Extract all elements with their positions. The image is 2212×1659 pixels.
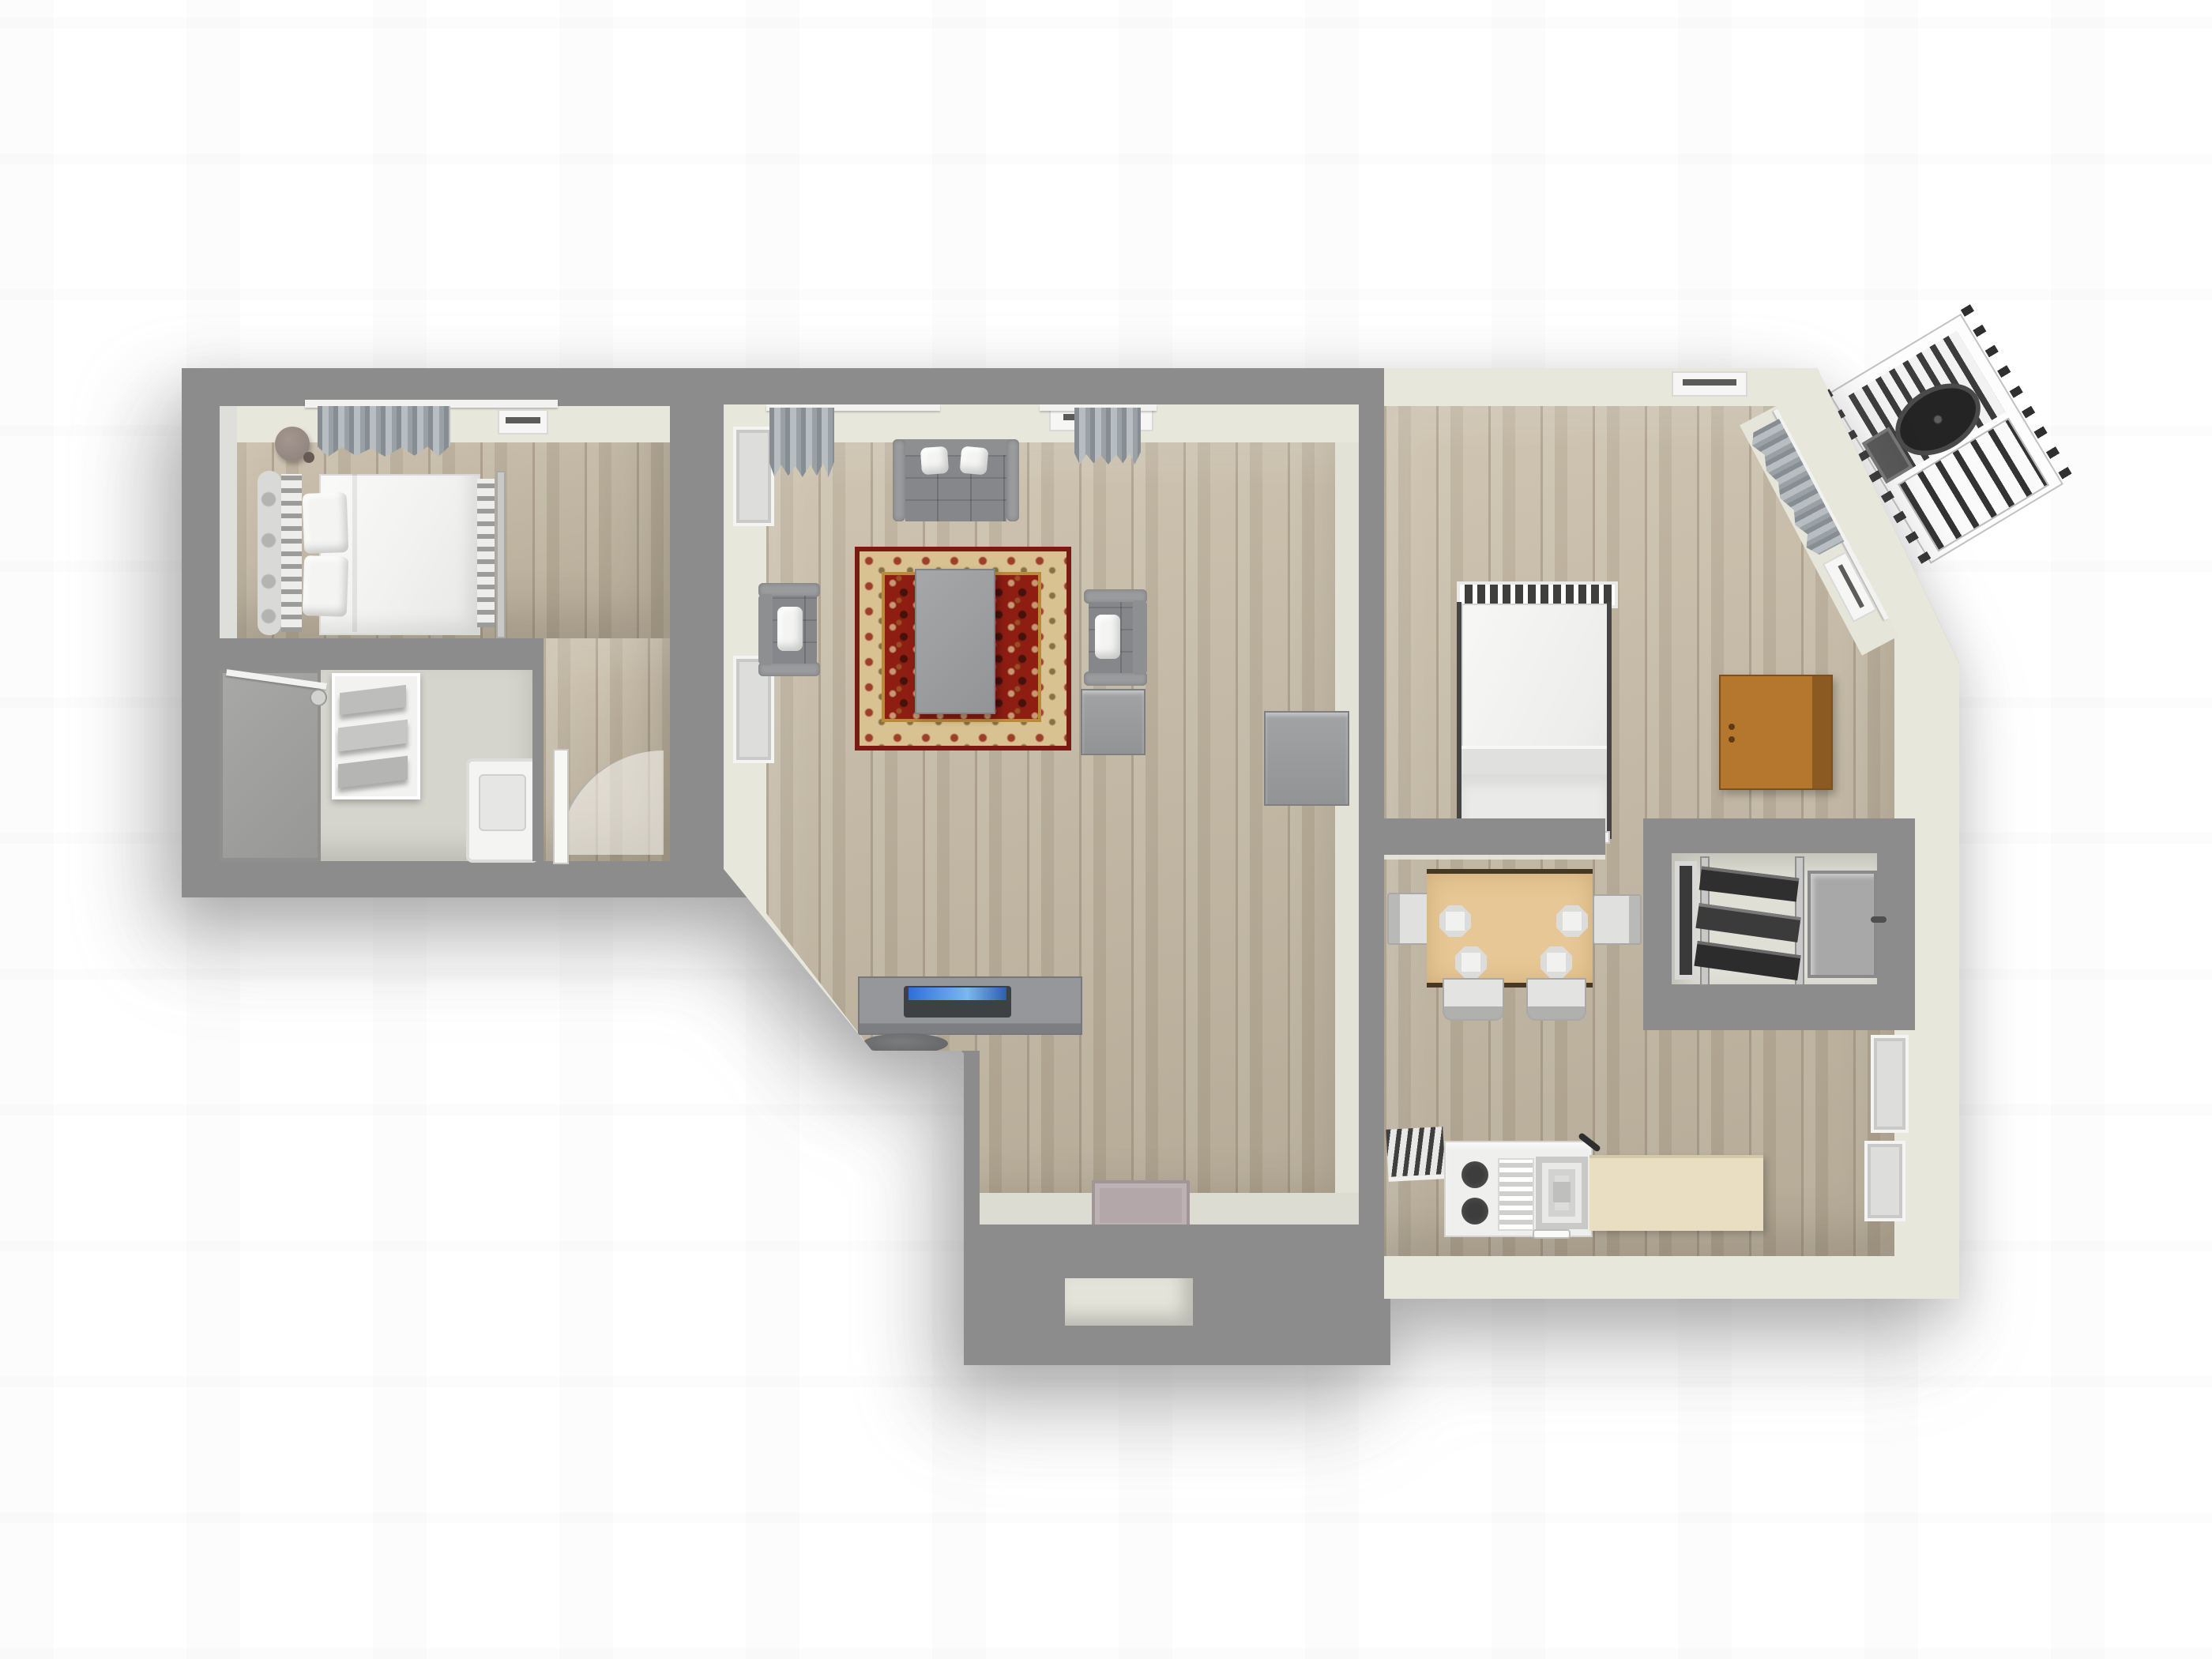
sideboard-east bbox=[1264, 711, 1349, 806]
armchair-east bbox=[1084, 589, 1147, 686]
screenshot-root bbox=[0, 0, 2212, 1659]
wall-bedroom-right-south bbox=[1384, 818, 1605, 855]
plate-3 bbox=[1455, 946, 1487, 978]
shelf-1 bbox=[340, 685, 406, 715]
laptop bbox=[904, 986, 1011, 1018]
right-block bbox=[1384, 368, 1959, 1299]
laptop-screen bbox=[908, 987, 1006, 1000]
storage-door-frame bbox=[1675, 861, 1697, 980]
bed-left-pillow-1 bbox=[303, 492, 349, 554]
stove-burner-2 bbox=[1461, 1198, 1488, 1224]
kitchen-counter bbox=[1444, 1141, 1593, 1237]
living-room-window-west-1 bbox=[733, 427, 774, 526]
armchair-west-pillow bbox=[777, 607, 803, 651]
bedroom-left-west-wallface bbox=[220, 406, 237, 638]
shelf-3 bbox=[338, 756, 408, 788]
dining-chair-west bbox=[1387, 893, 1430, 945]
bed-left-headboard-slats bbox=[281, 474, 302, 632]
entry-mat bbox=[1092, 1180, 1190, 1231]
side-cabinet bbox=[1081, 689, 1145, 755]
faucet bbox=[1533, 1229, 1571, 1239]
apartment bbox=[0, 0, 2212, 1659]
toilet bbox=[466, 758, 539, 863]
sofa-seat bbox=[905, 455, 1006, 521]
armchair-east-back bbox=[1131, 600, 1147, 675]
sofa-arm-right bbox=[1006, 439, 1019, 521]
floor-plan-stage bbox=[0, 0, 2212, 1659]
bed-right bbox=[1457, 581, 1612, 841]
bedroom-left-radiator bbox=[498, 409, 548, 434]
sink bbox=[1536, 1157, 1588, 1229]
living-room bbox=[724, 404, 1359, 1224]
sink-basin bbox=[1553, 1182, 1571, 1202]
plate-4 bbox=[1540, 946, 1572, 978]
right-block-window-east-2 bbox=[1864, 1141, 1905, 1221]
wardrobe-handle-1 bbox=[1729, 724, 1735, 730]
living-room-east-wallface bbox=[1335, 442, 1359, 1224]
bed-left-sheet-fold bbox=[352, 474, 357, 632]
hall-door-leaf bbox=[553, 749, 569, 864]
plate-2 bbox=[1556, 905, 1588, 937]
shelf-2 bbox=[338, 720, 408, 752]
bed-left bbox=[258, 471, 502, 635]
dining-chair-east bbox=[1593, 894, 1642, 945]
coffee-table bbox=[915, 569, 995, 714]
shower-head bbox=[310, 689, 327, 706]
side-table-knob bbox=[303, 452, 314, 463]
wardrobe-brown bbox=[1719, 675, 1833, 790]
wardrobe-handle-2 bbox=[1729, 736, 1735, 743]
sofa-pillow-2 bbox=[960, 446, 989, 476]
bathroom-shelf-unit bbox=[332, 673, 420, 799]
kitchen-counter-beige bbox=[1589, 1155, 1763, 1231]
bedroom-right-radiator bbox=[1672, 371, 1747, 397]
storage-cabinet bbox=[1808, 871, 1877, 978]
drainboard bbox=[1498, 1158, 1534, 1231]
sofa bbox=[893, 439, 1019, 525]
bed-left-foot-rail bbox=[496, 471, 506, 638]
dining-table bbox=[1427, 869, 1593, 987]
bed-left-footboard-slats bbox=[477, 479, 495, 627]
bed-left-headboard bbox=[258, 471, 281, 635]
dining-chair-south-2 bbox=[1526, 978, 1586, 1021]
dining-chair-south-1 bbox=[1443, 978, 1504, 1021]
plate-1 bbox=[1439, 905, 1471, 937]
right-block-window-east-1 bbox=[1871, 1035, 1909, 1133]
dish-rack bbox=[1386, 1127, 1445, 1182]
storage-cabinet-knob bbox=[1871, 916, 1887, 923]
armchair-west bbox=[758, 583, 820, 676]
wall-bedroom-bathroom bbox=[182, 638, 544, 670]
toilet-lid bbox=[479, 774, 526, 831]
shower-pan bbox=[220, 670, 321, 861]
stove-burner-1 bbox=[1461, 1161, 1488, 1188]
bed-left-pillow-2 bbox=[303, 555, 349, 617]
armchair-west-back bbox=[758, 594, 774, 665]
entry-vestibule-alcove bbox=[1065, 1278, 1193, 1326]
sofa-arm-left bbox=[893, 439, 905, 521]
sofa-pillow-1 bbox=[920, 446, 949, 475]
living-room-curtains-right bbox=[1074, 408, 1141, 465]
desk-chair bbox=[863, 1033, 948, 1054]
armchair-east-pillow bbox=[1095, 615, 1120, 659]
storage-room bbox=[1643, 818, 1915, 1030]
bed-right-rail-right bbox=[1607, 602, 1612, 839]
